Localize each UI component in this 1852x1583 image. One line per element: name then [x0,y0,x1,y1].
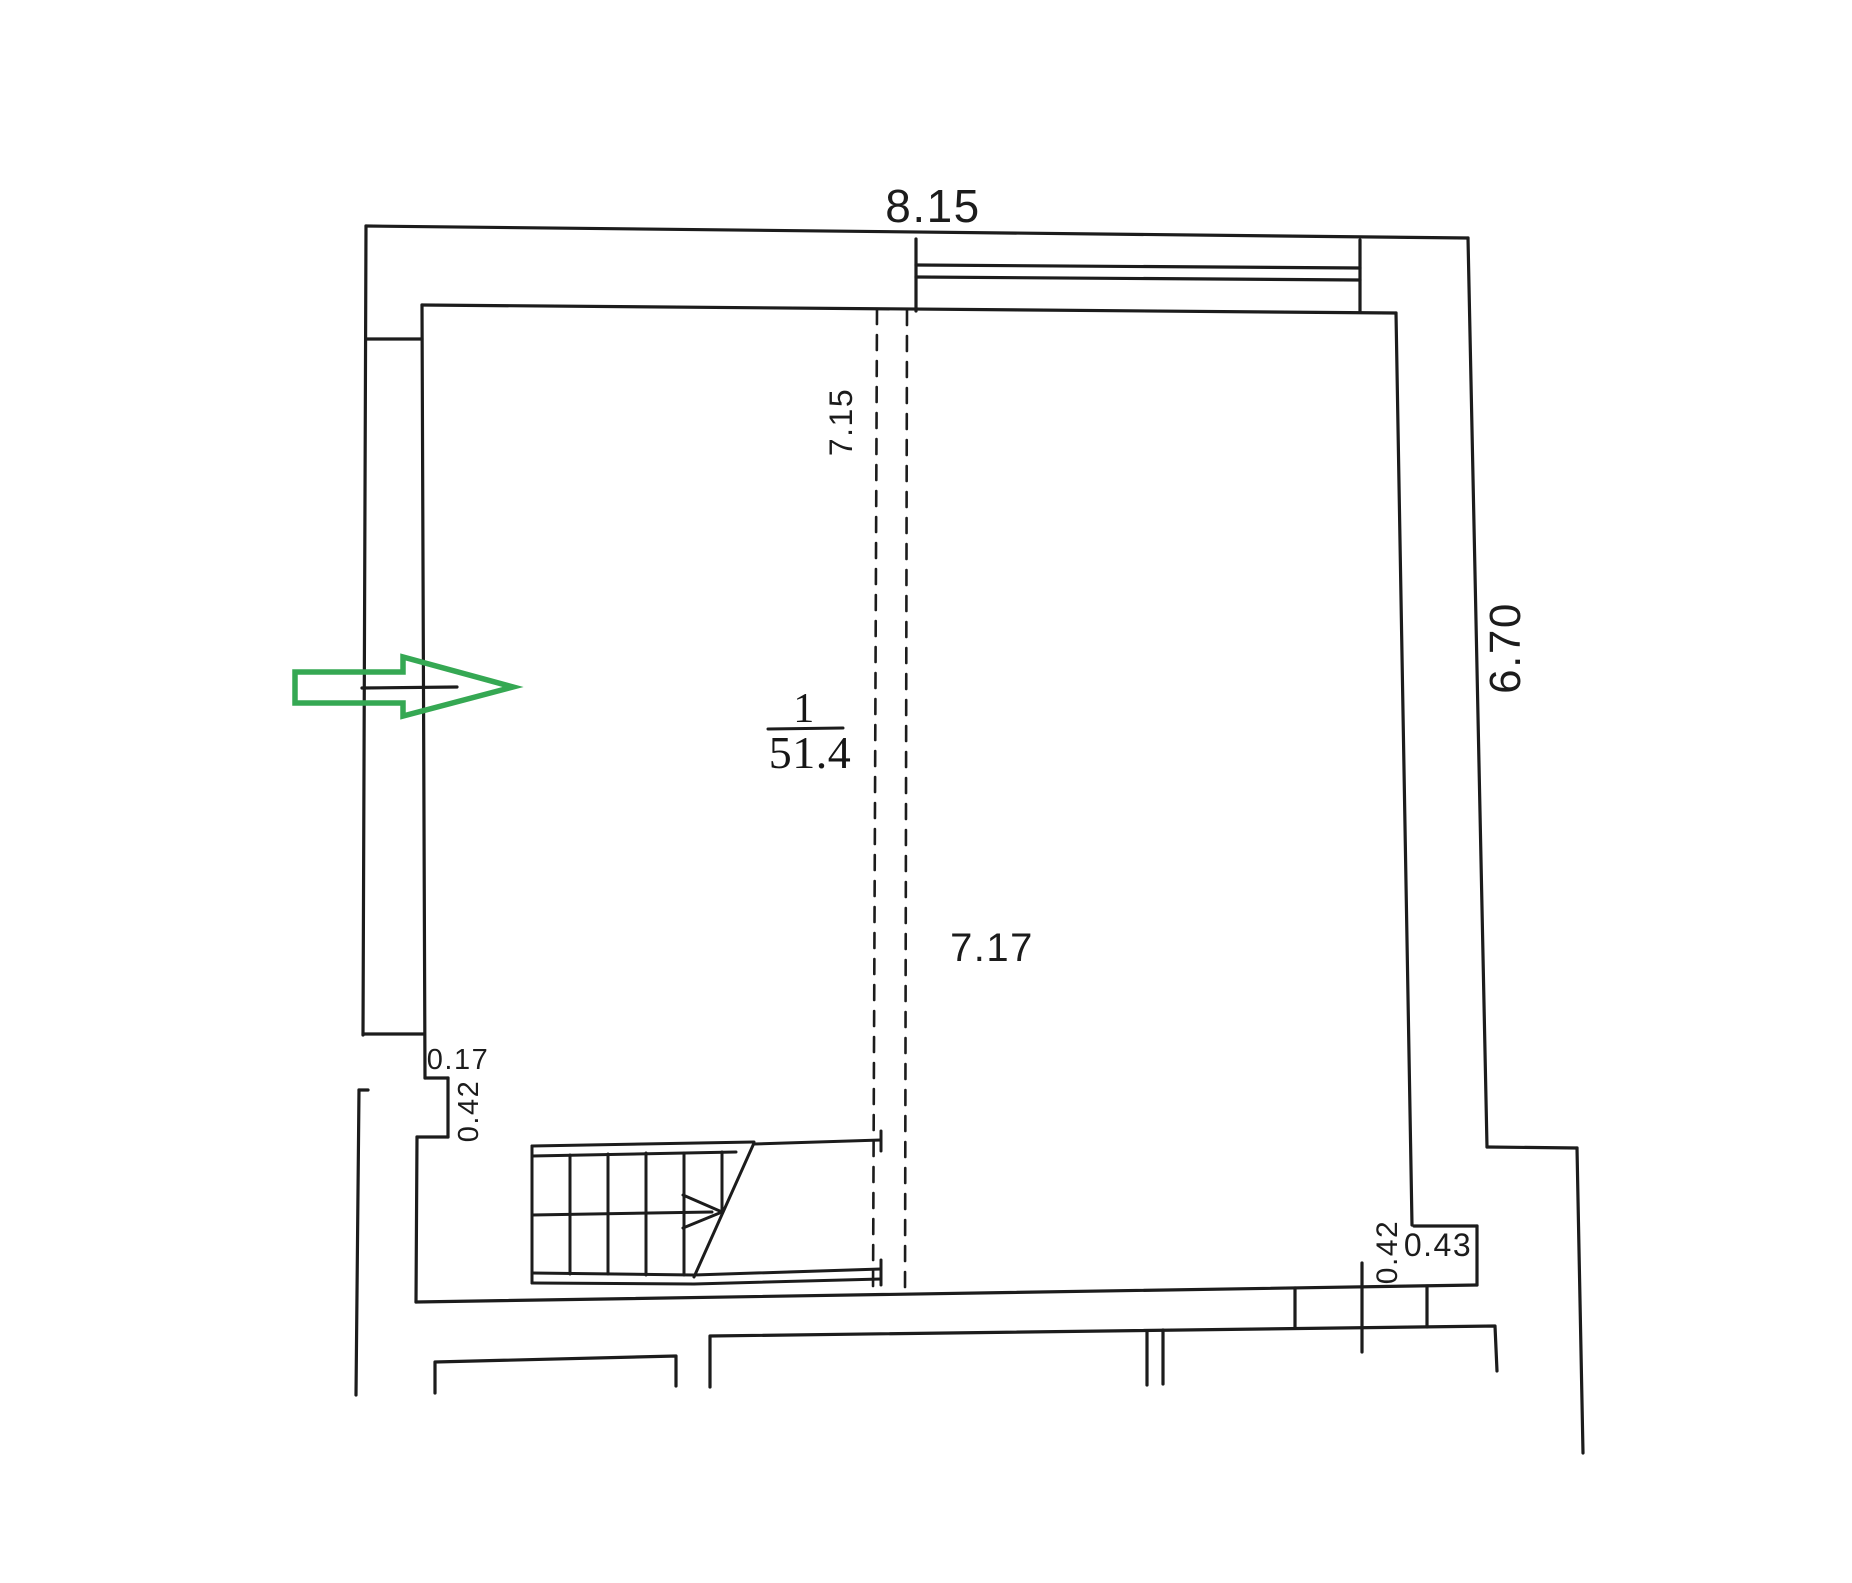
stair-top-edge-inner [532,1152,736,1156]
dim-room-width-right: 7.17 [950,926,1034,970]
dim-left-step-height: 0.42 [453,1080,485,1142]
room-number: 1 [793,686,815,732]
dim-top-width: 8.15 [885,180,981,232]
stair-direction-chevron-upper [683,1195,722,1212]
lower-left-bracket [435,1356,676,1393]
stair-top-edge-outer [532,1142,754,1146]
inner-wall-left-lower [416,1137,417,1302]
floor-plan-page: 8.15 6.70 7.15 7.17 0.17 0.42 0.42 0.43 … [0,0,1852,1583]
dashed-partition-lines [873,309,907,1294]
room-label: 1 51.4 [768,686,851,778]
dashed-partition-right [905,310,907,1293]
inner-wall-top [422,305,1396,313]
outer-wall-left-lower [356,1090,359,1395]
inner-wall-bottom [416,1285,1477,1302]
stair-bottom-edge-inner [532,1273,694,1275]
lower-wall [710,1326,1497,1387]
stair-bottom-extension-b [694,1279,881,1284]
window-pane-line-1 [916,265,1360,268]
entrance-door-tick [362,687,457,688]
staircase [532,1131,881,1285]
window-pane-line-2 [916,277,1360,280]
room-area: 51.4 [769,727,852,778]
dim-right-height: 6.70 [1481,602,1530,694]
floor-plan-drawing: 8.15 6.70 7.15 7.17 0.17 0.42 0.42 0.43 … [0,0,1852,1583]
dashed-partition-left [873,309,877,1294]
inner-wall-right [1396,313,1412,1225]
outer-wall-left-upper [363,226,366,1035]
stair-bottom-edge-outer [532,1283,694,1284]
dim-right-step-width: 0.43 [1404,1227,1472,1263]
inner-wall-left [422,305,425,1078]
stair-diagonal [694,1143,754,1277]
outer-wall-right-step [1487,1147,1577,1148]
stair-bottom-extension-a [694,1269,881,1275]
dim-right-step-height: 0.42 [1371,1220,1404,1284]
stair-top-extension [754,1140,881,1144]
outer-wall-right-lower [1577,1148,1583,1453]
dim-room-width-left: 7.15 [823,388,859,456]
dim-left-step-depth: 0.17 [427,1044,489,1076]
